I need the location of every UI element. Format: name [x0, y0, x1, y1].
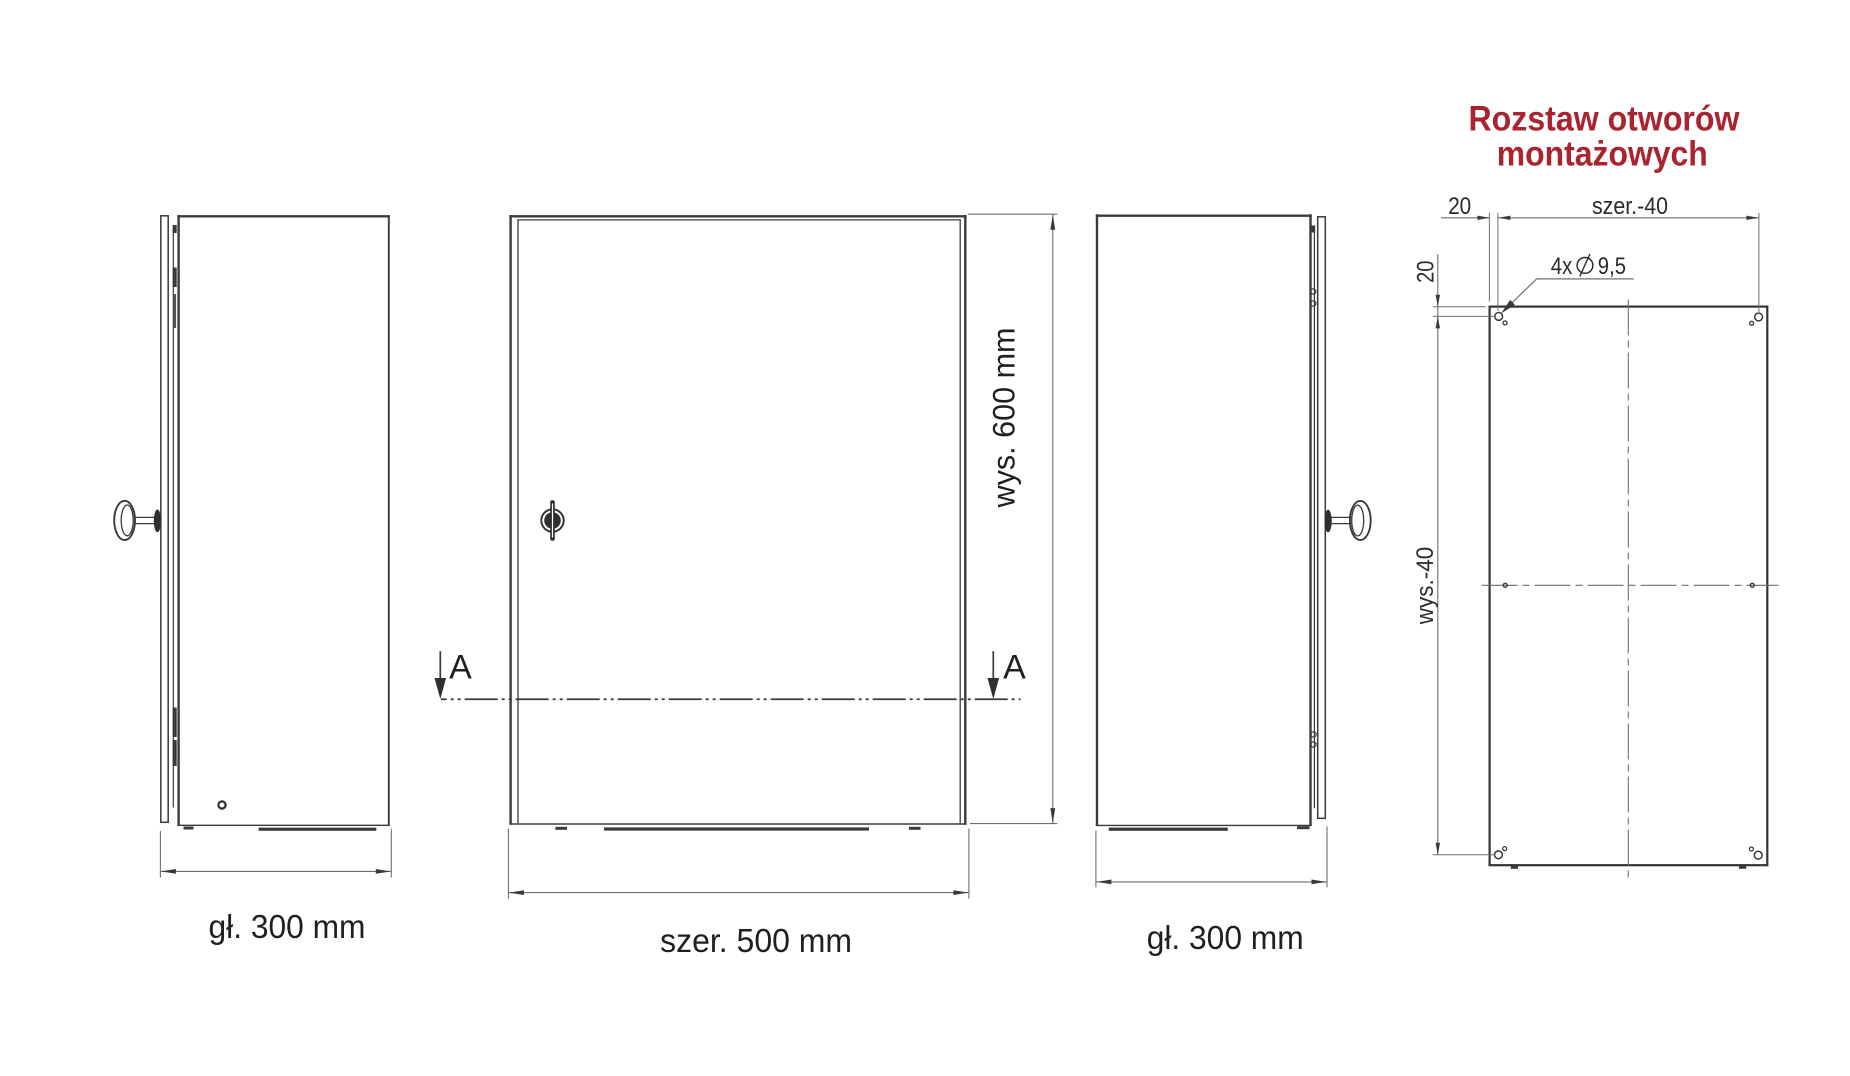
svg-text:20: 20 — [1448, 193, 1471, 220]
svg-text:gł. 300 mm: gł. 300 mm — [209, 908, 366, 945]
svg-text:wys. 600 mm: wys. 600 mm — [985, 328, 1021, 509]
svg-text:A: A — [449, 649, 472, 687]
svg-text:4x: 4x — [1551, 253, 1573, 280]
svg-text:A: A — [1003, 649, 1026, 687]
svg-text:Rozstaw otworów: Rozstaw otworów — [1469, 99, 1741, 138]
svg-text:9,5: 9,5 — [1598, 253, 1626, 280]
svg-text:szer.-40: szer.-40 — [1592, 193, 1668, 220]
svg-text:montażowych: montażowych — [1497, 135, 1708, 174]
svg-text:szer. 500 mm: szer. 500 mm — [660, 922, 852, 959]
svg-text:gł. 300 mm: gł. 300 mm — [1147, 919, 1304, 956]
svg-text:20: 20 — [1412, 261, 1439, 283]
svg-text:wys.-40: wys.-40 — [1412, 547, 1439, 625]
